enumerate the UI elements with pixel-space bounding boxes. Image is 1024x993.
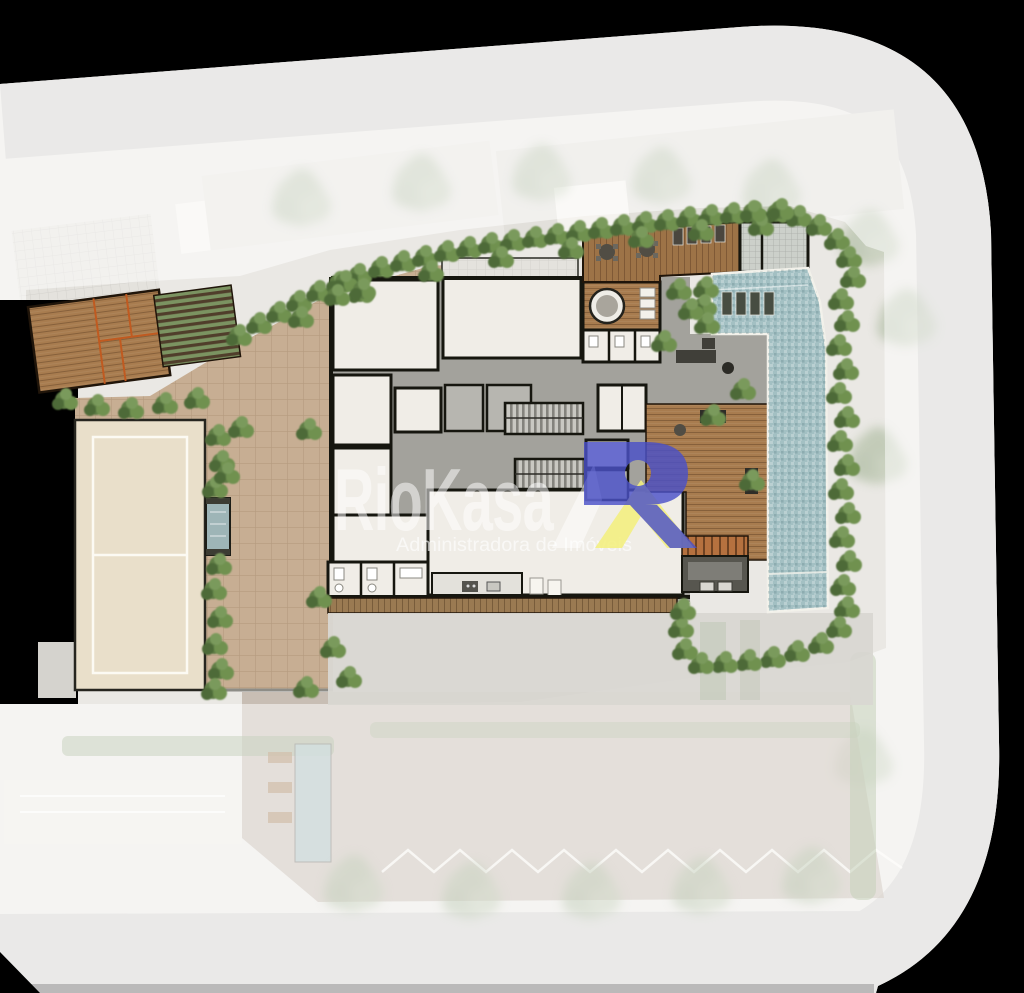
gray-notch — [38, 642, 76, 698]
watermark-tagline: Administradora de Imóveis — [396, 535, 632, 556]
room-c — [333, 375, 391, 445]
floorplan-image: RioKasa Administradora de Imóveis — [0, 0, 1024, 993]
bathrooms-bottom — [328, 562, 428, 598]
water-feature — [206, 498, 230, 555]
room-small — [395, 388, 441, 432]
elevator-1 — [445, 385, 483, 431]
site-plan: RioKasa Administradora de Imóveis — [0, 0, 1024, 993]
wood-deck-topleft — [28, 290, 170, 393]
room-b — [443, 278, 581, 358]
bottom-deck — [328, 598, 677, 613]
pergola — [154, 285, 241, 367]
staircase-1 — [505, 403, 583, 434]
bathrooms-top — [583, 330, 660, 362]
room-a — [333, 280, 438, 370]
kitchen — [432, 573, 522, 595]
jacuzzi-room — [583, 282, 660, 330]
tennis-court — [75, 420, 205, 690]
